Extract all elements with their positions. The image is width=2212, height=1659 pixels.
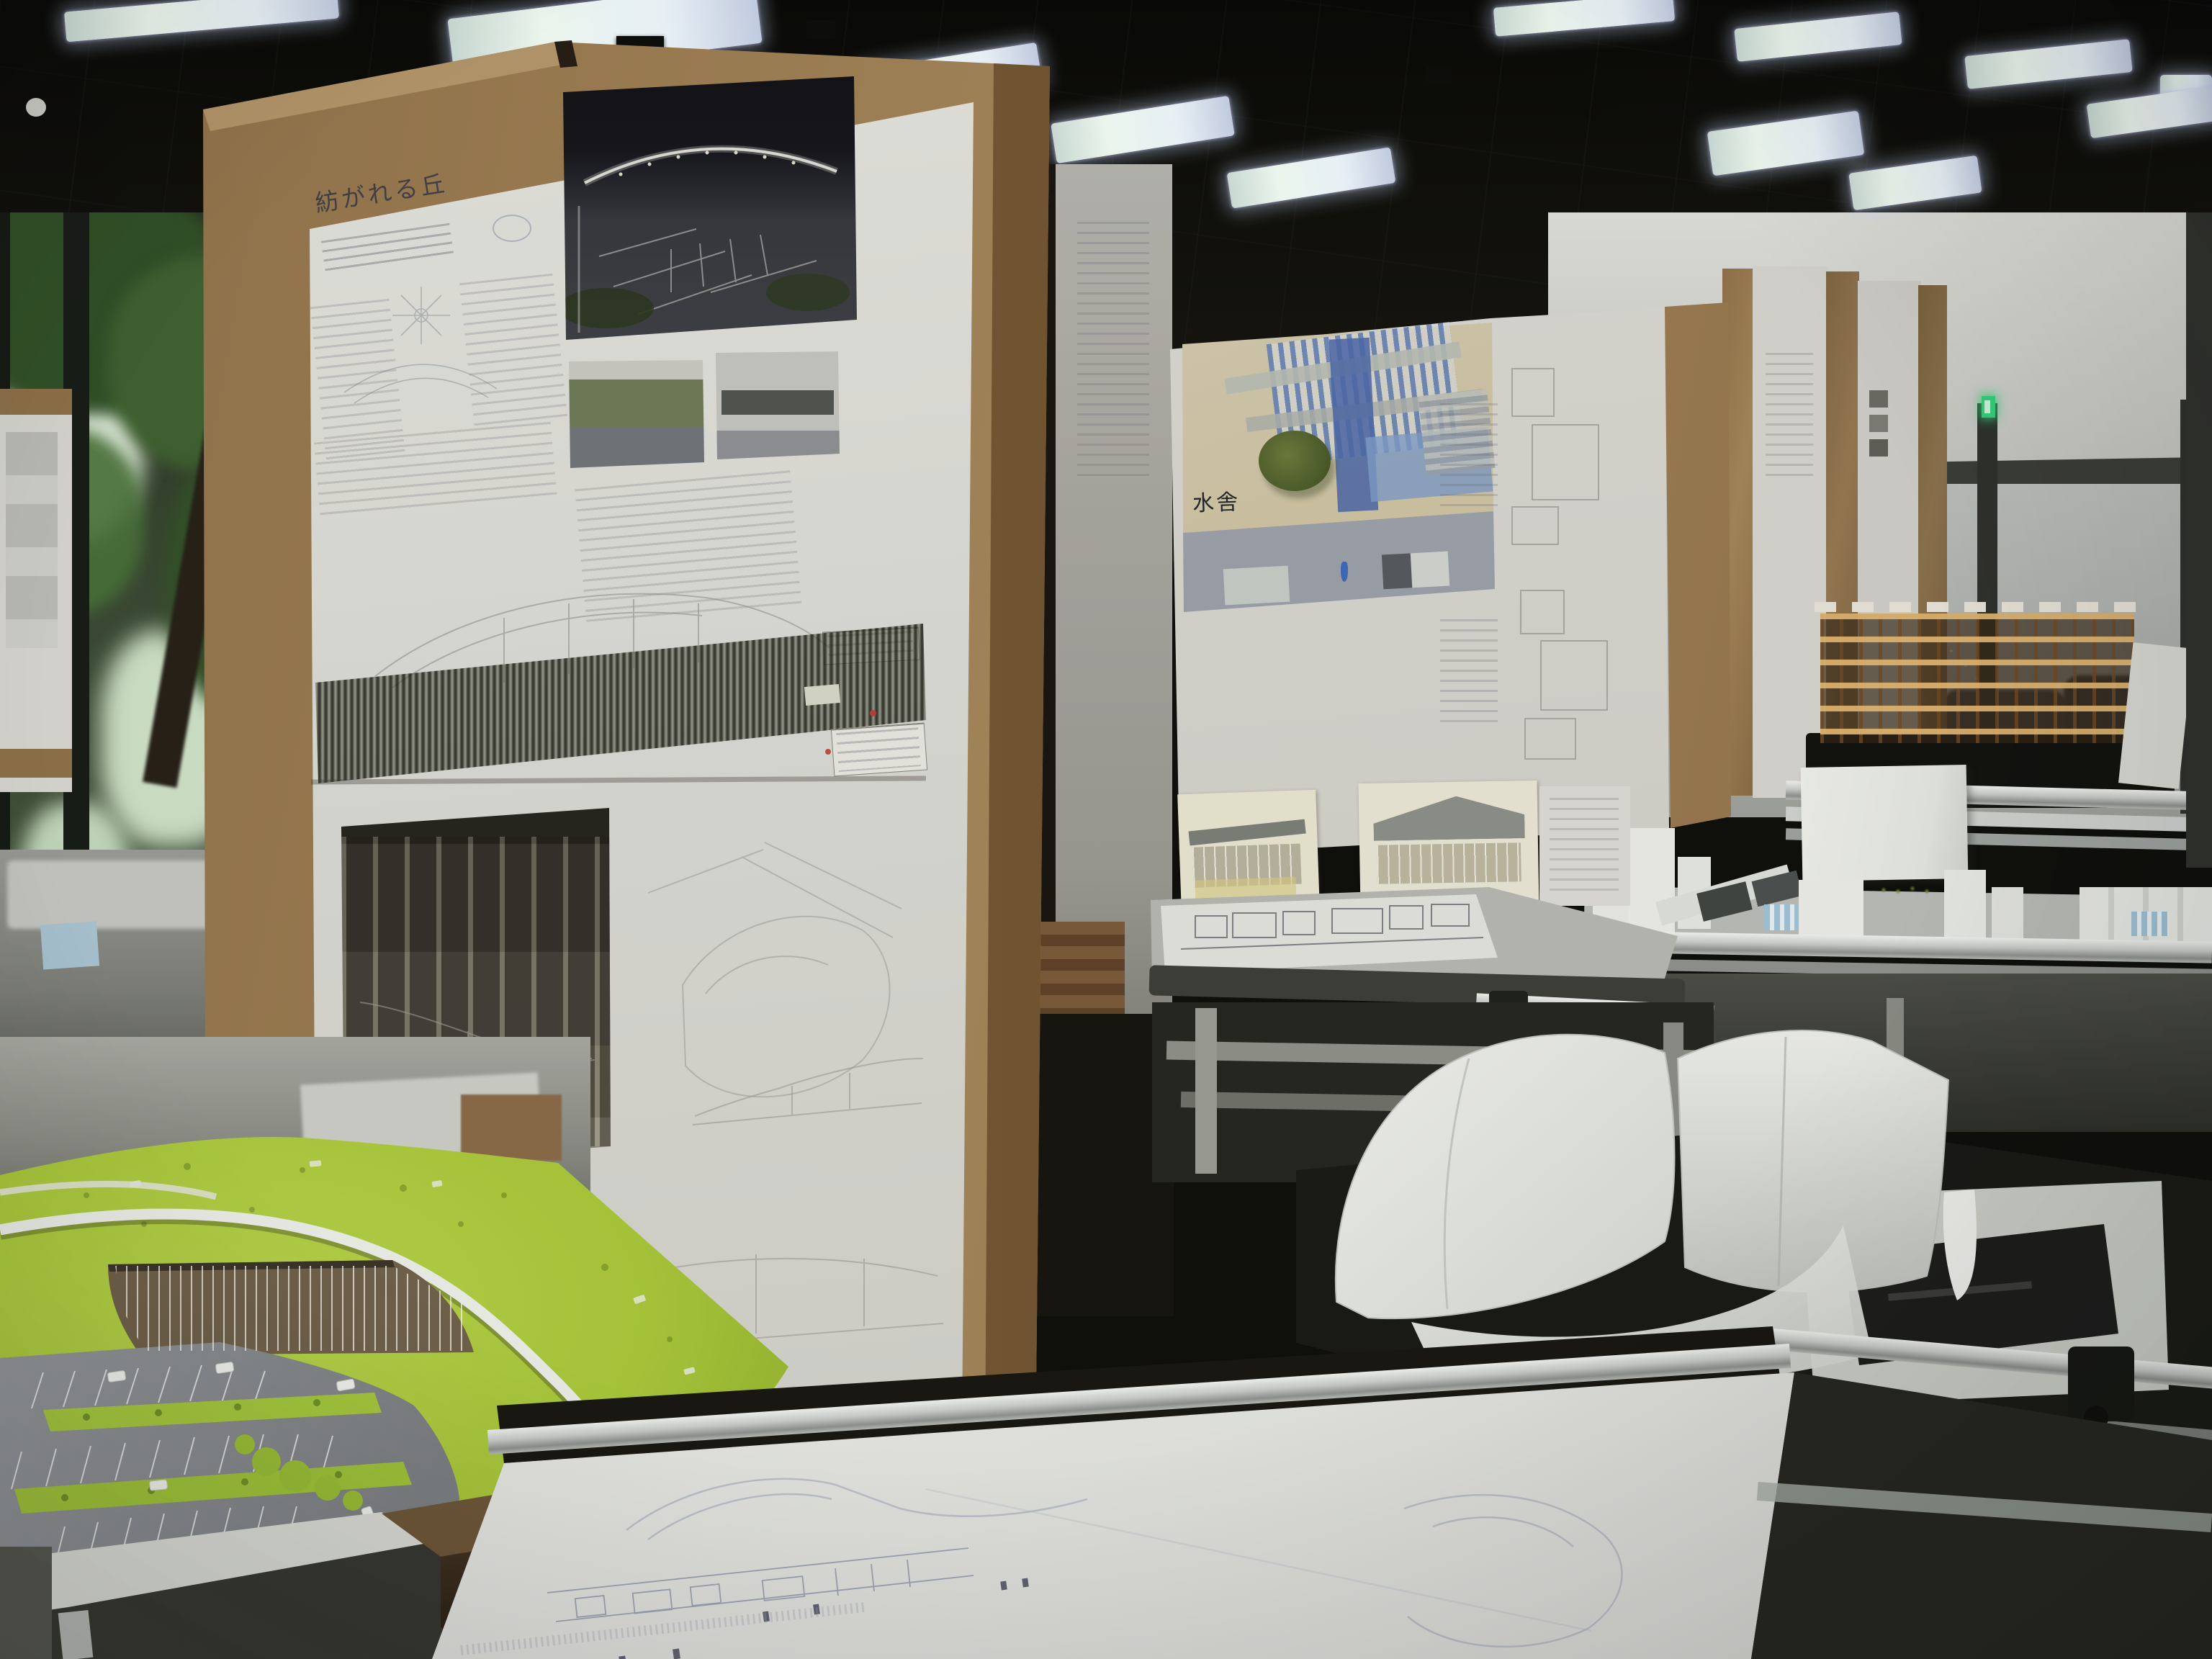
concept-text-column	[459, 274, 567, 426]
sketch-roof	[1373, 795, 1525, 841]
thumbnail-dark-half	[1382, 553, 1412, 589]
studio-photo: 水舎	[0, 0, 2212, 1659]
table-leg	[1195, 1008, 1217, 1174]
facade-mullions	[115, 1266, 468, 1351]
blue-model-houses	[2131, 912, 2169, 936]
watercolor-tree	[1259, 431, 1331, 491]
poster-stamp	[493, 215, 531, 242]
title-label	[831, 723, 927, 777]
smoke-detector	[26, 98, 46, 117]
exit-sign	[1982, 396, 1995, 418]
white-display-board	[1801, 765, 1969, 881]
foam-block	[1944, 870, 1986, 947]
thumbnail	[1869, 415, 1888, 432]
cardboard-cap	[0, 389, 72, 415]
pool-thumbnail	[1382, 552, 1449, 590]
site-photo-small	[716, 351, 840, 459]
blue-model-houses	[1764, 904, 1799, 930]
plan-sheet-upright	[1539, 786, 1630, 906]
bg-board-face	[1753, 266, 1827, 798]
foam-block	[1992, 887, 2023, 943]
plan-annotations	[1440, 403, 1498, 511]
sketch-watercolor	[1177, 790, 1320, 913]
table-leg-dark	[0, 1547, 52, 1659]
track-spotlight	[1426, 66, 1452, 84]
elevation-sign-spot	[804, 684, 840, 706]
dark-under-gap	[1022, 1014, 1174, 1316]
thumbnail	[1869, 390, 1888, 408]
exit-pictogram	[1984, 400, 1990, 413]
concept-text-column	[575, 470, 801, 625]
backdrop-wood-box	[461, 1094, 562, 1161]
track-spotlight	[806, 20, 835, 39]
site-photo-small	[569, 360, 704, 468]
table-leg-steel	[58, 1610, 94, 1659]
sketch-columns	[1377, 842, 1521, 884]
wood-stack	[1037, 922, 1125, 1017]
timber-roof-sticks	[1815, 602, 2139, 612]
thumbnail	[1869, 439, 1888, 457]
poster-title-middle: 水舎	[1192, 482, 1293, 518]
photo-window-band	[721, 390, 834, 415]
model-base-edge	[0, 1512, 432, 1617]
model-greenery	[1876, 883, 1937, 899]
blue-model-piece	[40, 921, 99, 969]
red-check-mark	[870, 710, 876, 716]
pinned-sheets	[6, 432, 58, 648]
red-check-mark	[825, 749, 831, 755]
pool-thumbnail	[1223, 566, 1290, 606]
night-photo	[563, 76, 857, 340]
cardboard-cap	[0, 749, 72, 778]
plan-annotations	[1440, 619, 1498, 727]
timber-frame-model	[1820, 613, 2134, 743]
wall-pillar	[2186, 212, 2212, 868]
sketch-roofline	[1188, 819, 1305, 846]
blue-drop-mark	[1341, 562, 1348, 582]
side-display-board	[0, 389, 72, 792]
table-leg	[1887, 998, 1904, 1113]
